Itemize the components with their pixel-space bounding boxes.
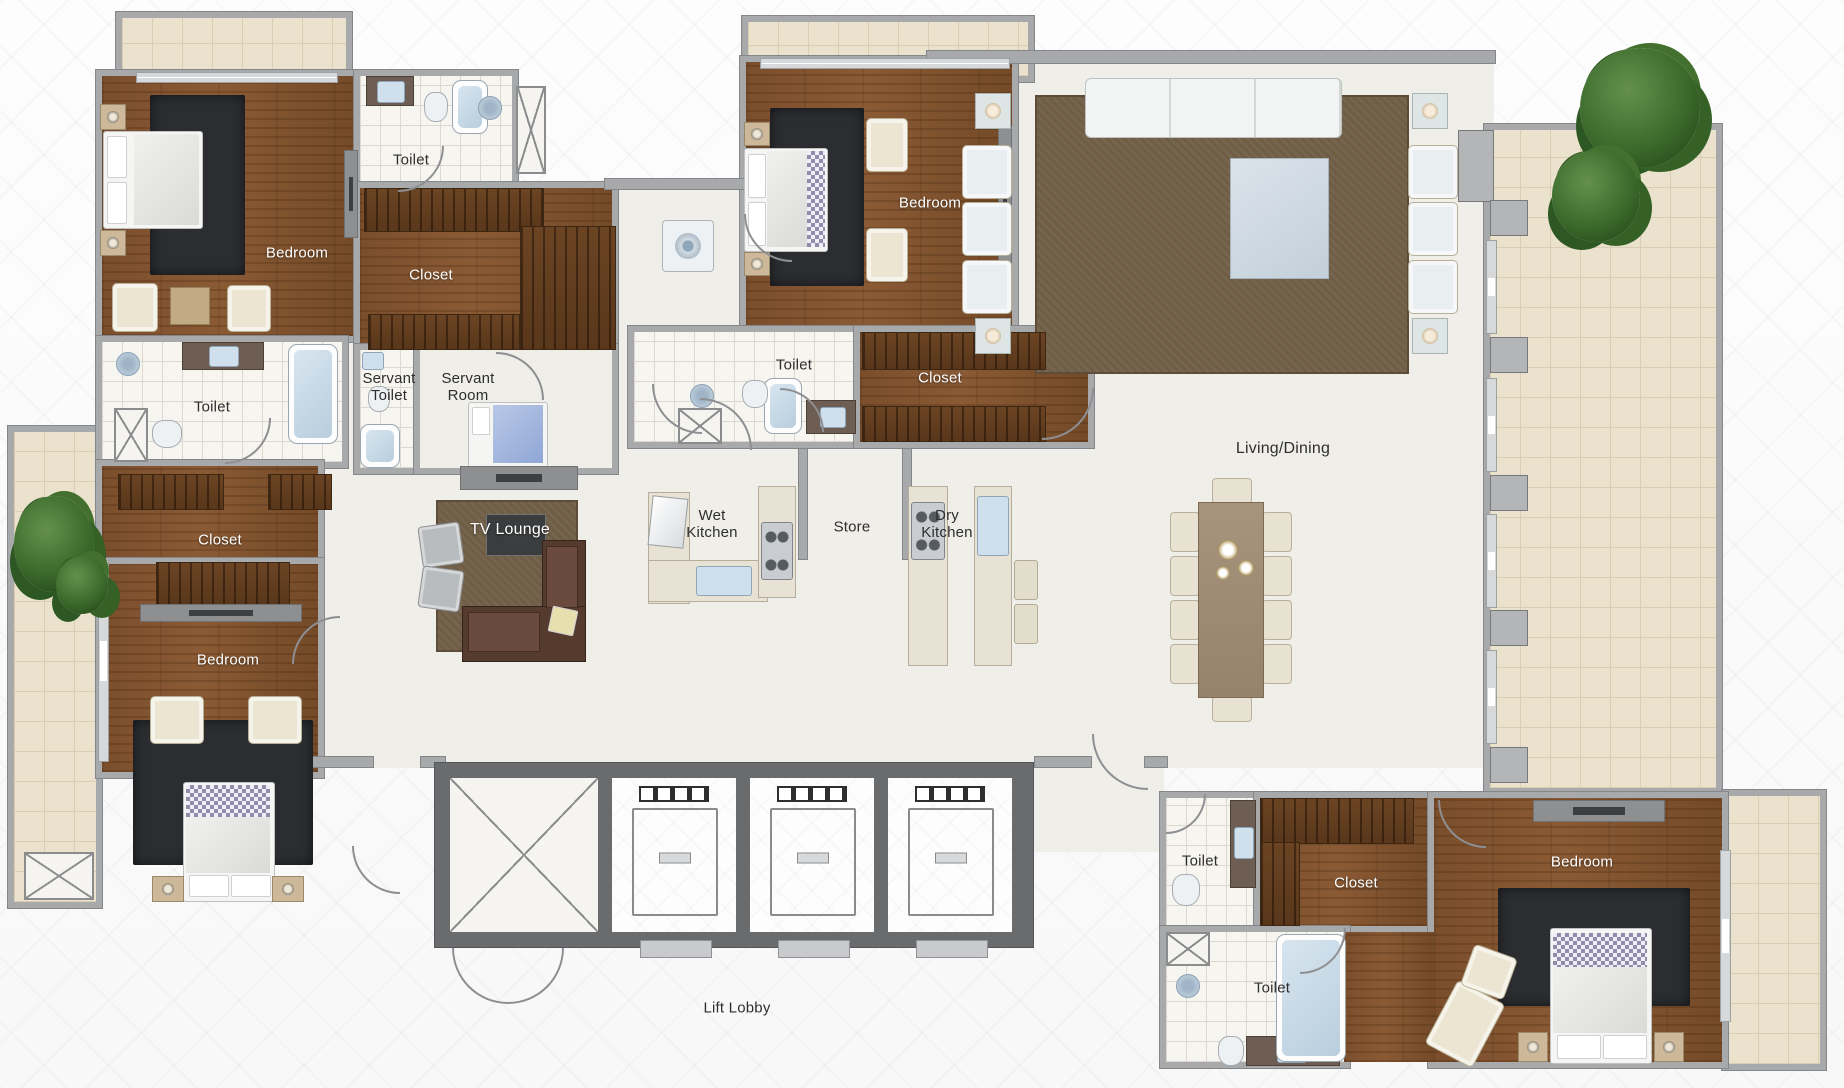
armchair	[112, 283, 158, 332]
toilet-4-wc	[1172, 874, 1200, 906]
living-armchair	[1408, 202, 1458, 256]
living-square-table	[1230, 158, 1329, 279]
toilet-3-wc	[742, 380, 768, 408]
lamp-table	[975, 93, 1011, 129]
toilet-1-wc	[424, 92, 448, 122]
bed-blanket-checkered	[1553, 933, 1647, 967]
lift-car	[632, 808, 718, 916]
wardrobe	[862, 332, 1046, 370]
wardrobe	[1260, 842, 1300, 926]
living-armchair	[962, 260, 1012, 314]
side-table	[170, 287, 210, 325]
window-bedroom-2	[760, 58, 1010, 69]
sink	[209, 346, 239, 367]
bedroom-2-label: Bedroom	[899, 194, 961, 211]
lift-2	[750, 778, 874, 932]
bed-duvet	[134, 134, 199, 225]
plant	[56, 556, 108, 614]
closet-2-label: Closet	[198, 531, 242, 548]
bed-pillow	[472, 407, 490, 435]
dining-table	[1198, 502, 1264, 698]
dining-chair	[1170, 512, 1200, 552]
duct-shaft	[114, 408, 148, 462]
bedroom-3-label: Bedroom	[197, 651, 259, 668]
bedroom-4-tv-console	[1533, 800, 1665, 822]
wardrobe	[268, 474, 332, 510]
window-bedroom-1	[136, 72, 338, 83]
bedroom-4-passage	[1344, 932, 1434, 1062]
wardrobe	[520, 226, 616, 350]
shower-icon	[1176, 974, 1200, 998]
nightstand	[152, 876, 184, 902]
window-living-2	[1486, 378, 1497, 472]
nightstand	[272, 876, 304, 902]
armchair	[150, 696, 204, 744]
window-living-3	[1486, 514, 1497, 608]
toilet-2-bathtub	[288, 344, 338, 444]
nightstand	[100, 230, 126, 256]
floor-plan: Bedroom Toilet Closet Servant Toilet Ser…	[0, 0, 1844, 1088]
pillar-4	[1490, 475, 1528, 511]
lift-counterweight	[639, 786, 709, 802]
double-sink	[696, 566, 752, 596]
dresser-wood	[156, 562, 290, 606]
toilet-2-vanity	[182, 342, 264, 370]
wardrobe	[368, 314, 520, 350]
lift-lobby-label: Lift Lobby	[703, 999, 770, 1016]
nightstand	[1518, 1032, 1548, 1062]
sofa-cushion	[548, 606, 579, 637]
wall-living-top	[926, 50, 1496, 64]
bedroom-4-label: Bedroom	[1551, 853, 1613, 870]
nightstand	[100, 104, 126, 130]
bed-duvet	[186, 817, 270, 873]
servant-toilet-label: Servant Toilet	[357, 370, 421, 405]
bar-stool	[1014, 560, 1038, 600]
living-armchair	[1408, 145, 1458, 199]
lift-3	[888, 778, 1012, 932]
bedroom-1-bed	[103, 131, 203, 229]
gray-chair	[417, 521, 464, 568]
lift-door-sill	[640, 940, 712, 958]
wall-bottom-left-a	[312, 756, 374, 768]
dining-chair	[1170, 644, 1200, 684]
tv-lounge-console	[460, 466, 578, 490]
lift-car	[770, 808, 856, 916]
armchair	[866, 118, 908, 172]
bedroom-1-tv-console	[344, 150, 358, 238]
wall-kitchen-stub-1	[798, 448, 808, 560]
dinnerware	[1218, 540, 1238, 560]
shower-icon	[116, 352, 140, 376]
dining-chair	[1170, 600, 1200, 640]
closet-3-label: Closet	[918, 369, 962, 386]
toilet-4-label: Toilet	[1182, 852, 1218, 869]
pillar-2	[1490, 200, 1528, 236]
stair-shaft	[450, 778, 598, 932]
wet-kitchen-label: Wet Kitchen	[676, 507, 748, 542]
living-dining-label: Living/Dining	[1236, 440, 1330, 458]
wardrobe	[862, 406, 1046, 442]
closet-1-label: Closet	[409, 266, 453, 283]
lift-counterweight	[777, 786, 847, 802]
tv-lounge-label: TV Lounge	[470, 521, 550, 539]
dining-chair	[1170, 556, 1200, 596]
pillar-6	[1490, 747, 1528, 783]
pillar-5	[1490, 610, 1528, 646]
sofa-seat	[546, 546, 578, 608]
duct-shaft	[1166, 932, 1210, 966]
bed-pillow	[107, 136, 127, 178]
door-arc	[452, 948, 508, 1004]
duct-shaft-top	[516, 86, 546, 174]
nightstand	[744, 122, 770, 146]
closet-4-label: Closet	[1334, 874, 1378, 891]
servant-room-label: Servant Room	[430, 370, 506, 405]
servant-bed	[468, 402, 548, 468]
bedroom-3-tv-console	[140, 604, 302, 622]
window-living-4	[1486, 650, 1497, 744]
armchair	[248, 696, 302, 744]
toilet-5-wc	[1218, 1036, 1244, 1066]
living-sofa	[1085, 78, 1342, 138]
wardrobe	[364, 188, 544, 232]
pillar-3	[1490, 337, 1528, 373]
lift-car	[908, 808, 994, 916]
bed-blanket-checkered	[186, 785, 270, 817]
toilet-4-vanity	[1230, 800, 1256, 888]
servant-toilet-shower	[360, 424, 400, 468]
bedroom-1-label: Bedroom	[266, 244, 328, 261]
bedroom-4-bed	[1550, 928, 1652, 1064]
dinnerware	[1216, 566, 1230, 580]
lamp-table	[975, 318, 1011, 354]
living-armchair	[962, 202, 1012, 256]
lift-1	[612, 778, 736, 932]
lift-counterweight	[915, 786, 985, 802]
living-armchair	[962, 145, 1012, 199]
sink	[377, 81, 405, 103]
bed-pillow	[107, 182, 127, 224]
nightstand	[744, 252, 770, 276]
window-living-1	[1486, 240, 1497, 334]
dining-chair	[1212, 478, 1252, 504]
bed-duvet	[1553, 967, 1647, 1033]
sofa-seat	[468, 612, 540, 652]
sink	[820, 407, 846, 428]
balcony-bottom-right	[1722, 790, 1826, 1070]
dining-chair	[1262, 556, 1292, 596]
dry-kitchen-label: Dry Kitchen	[909, 507, 985, 542]
bed-duvet	[493, 405, 543, 463]
wall-corridor-top	[604, 178, 746, 190]
toilet-3-label: Toilet	[776, 356, 812, 373]
wardrobe	[118, 474, 224, 510]
lift-door-sill	[778, 940, 850, 958]
armchair	[227, 285, 271, 332]
toilet-1-label: Toilet	[393, 151, 429, 168]
bed-pillow	[189, 875, 229, 897]
washing-machine	[662, 220, 714, 272]
lift-door-sill	[916, 940, 988, 958]
living-armchair	[1408, 260, 1458, 314]
pillar-1	[1458, 130, 1494, 202]
toilet-5-label: Toilet	[1254, 979, 1290, 996]
window-bedroom-4	[1720, 850, 1731, 1022]
nightstand	[1654, 1032, 1684, 1062]
bed-pillow	[1603, 1035, 1647, 1059]
dinnerware	[1238, 560, 1254, 576]
gas-stove	[761, 522, 793, 580]
gray-chair	[417, 565, 464, 612]
bed-pillow	[748, 154, 766, 198]
dining-chair	[1262, 644, 1292, 684]
lamp-table	[1412, 93, 1448, 129]
balcony-left-hatch-box	[24, 852, 94, 900]
wardrobe	[1260, 798, 1414, 844]
toilet-2-wc	[152, 420, 182, 448]
bed-pillow	[231, 875, 271, 897]
dining-chair	[1212, 696, 1252, 722]
shower-icon	[478, 96, 502, 120]
dining-chair	[1262, 600, 1292, 640]
door-arc	[508, 948, 564, 1004]
door-arc	[352, 846, 400, 894]
bar-stool	[1014, 604, 1038, 644]
plant	[1552, 150, 1640, 242]
sink	[1234, 827, 1254, 859]
wall-bottom-right-a	[1034, 756, 1092, 768]
toilet-2-label: Toilet	[194, 398, 230, 415]
store-label: Store	[834, 518, 871, 535]
lamp-table	[1412, 318, 1448, 354]
bedroom-3-bed	[183, 782, 275, 902]
toilet-1-vanity	[366, 76, 414, 106]
bed-pillow	[1557, 1035, 1601, 1059]
armchair	[866, 228, 908, 282]
bed-blanket-checkered	[807, 151, 825, 247]
servant-toilet-sink	[362, 352, 384, 370]
dining-chair	[1262, 512, 1292, 552]
